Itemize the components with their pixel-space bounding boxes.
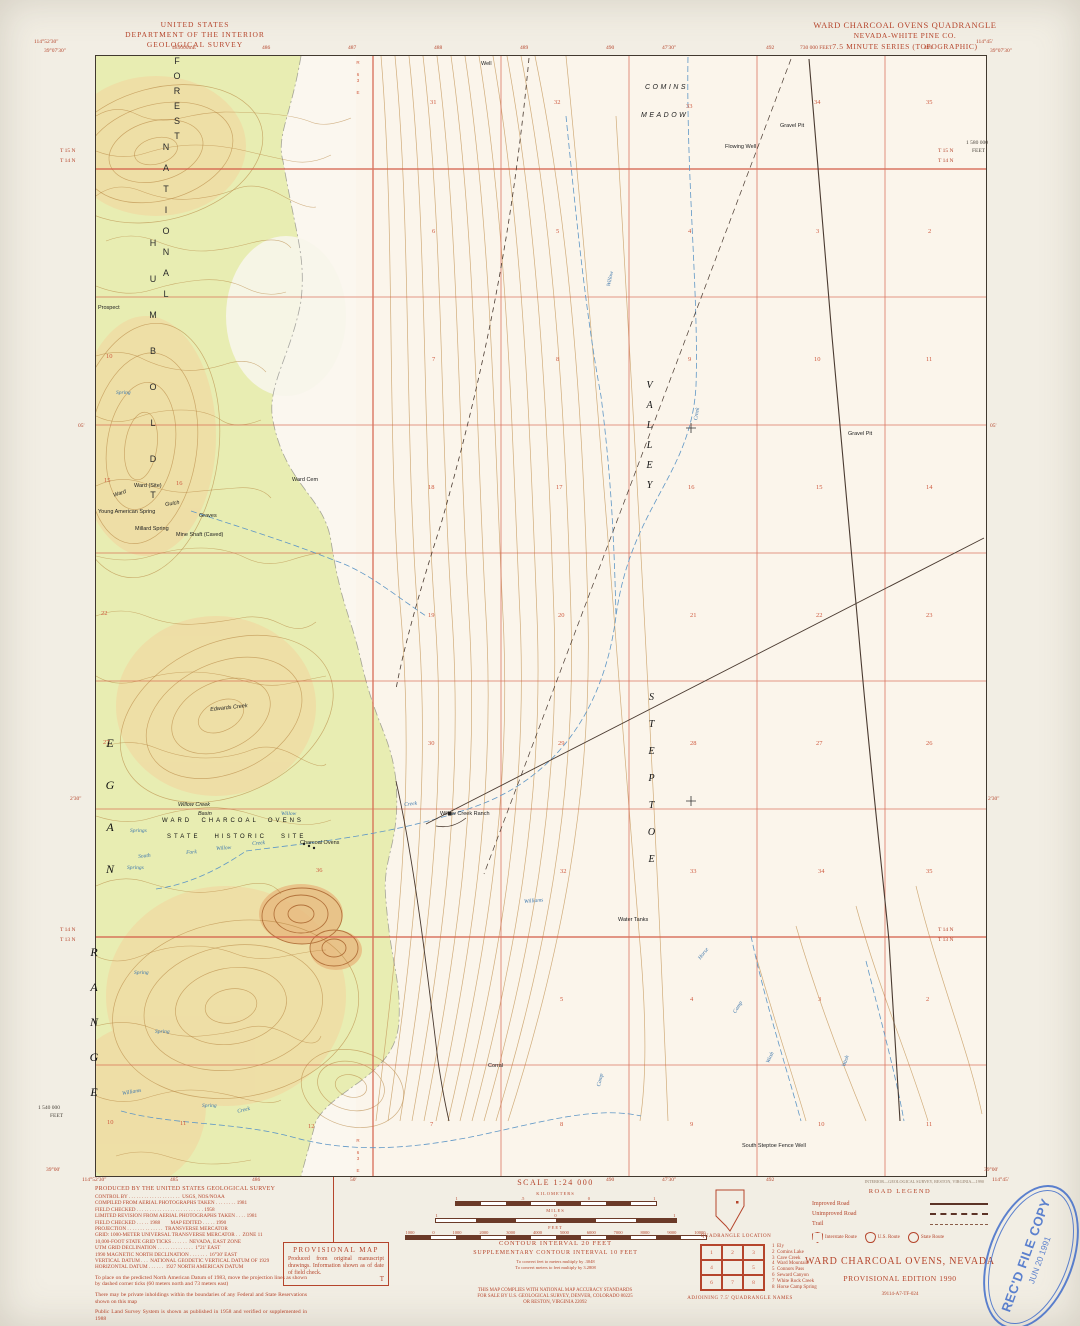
credit-paragraph: There may be private inholdings within t… [95, 1292, 307, 1305]
route-label: Interstate Route [825, 1235, 857, 1240]
contour-info: CONTOUR INTERVAL 20 FEET SUPPLEMENTARY C… [398, 1240, 713, 1270]
edge-label: 114°45' [992, 1178, 1009, 1184]
provisional-body: Produced from original manuscript drawin… [288, 1256, 384, 1276]
route-label: U.S. Route [878, 1235, 900, 1240]
scale-row-miles: MILES 101 [398, 1208, 713, 1223]
edge-label: T 14 N [60, 159, 75, 165]
edge-label: 2'30" [988, 797, 1000, 803]
adjoining-grid-cell: 7 [722, 1275, 743, 1290]
header-line: GEOLOGICAL SURVEY [80, 40, 310, 50]
adjoining-grid: 12345678 [700, 1244, 765, 1291]
road-legend-label: Trail [812, 1221, 823, 1227]
route-shields: Interstate Route U.S. Route State Route [812, 1232, 988, 1243]
provisional-corner-mark: T [380, 1275, 384, 1283]
header-line: NEVADA-WHITE PINE CO. [740, 31, 1070, 41]
scale-bar [435, 1218, 677, 1223]
state-outline [714, 1188, 748, 1239]
road-legend-row: Improved Road [812, 1201, 988, 1207]
scale-tick: 7000 [614, 1230, 623, 1235]
road-legend-label: Unimproved Road [812, 1211, 857, 1217]
edge-label: 486 [252, 1178, 260, 1184]
edge-label: 05' [78, 424, 85, 430]
scale-unit: KILOMETERS [398, 1191, 713, 1196]
scale-tick: 2000 [479, 1230, 488, 1235]
route-label: State Route [921, 1235, 944, 1240]
edge-label: 487 [348, 46, 356, 52]
road-legend-title: ROAD LEGEND [812, 1188, 988, 1195]
topo-map-sheet: UNITED STATES DEPARTMENT OF THE INTERIOR… [0, 0, 1080, 1326]
adjoining-grid-cell [722, 1260, 743, 1275]
us-route: U.S. Route [865, 1232, 900, 1243]
quadrangle-location-caption: QUADRANGLE LOCATION [676, 1234, 796, 1239]
usgs-header: UNITED STATES DEPARTMENT OF THE INTERIOR… [80, 20, 310, 50]
improved-road-symbol [930, 1203, 988, 1205]
state-route: State Route [908, 1232, 944, 1243]
edge-label: 39°07'30" [44, 49, 66, 55]
credit-paragraph: To place on the predicted North American… [95, 1275, 307, 1288]
header-line: DEPARTMENT OF THE INTERIOR [80, 30, 310, 40]
scale-tick: 1 [653, 1196, 655, 1201]
us-route-shield-icon [865, 1232, 876, 1243]
scale-bar [455, 1201, 657, 1206]
scale-tick: .5 [521, 1196, 524, 1201]
conversion-note: To convert meters to feet multiply by 3.… [398, 1265, 713, 1271]
edge-label: FEET [50, 1114, 63, 1120]
scale-tick: 0 [432, 1230, 434, 1235]
scale-row-kilometers: KILOMETERS 1.501 [398, 1191, 713, 1206]
road-legend: ROAD LEGEND Improved Road Unimproved Roa… [812, 1188, 988, 1243]
adjoining-grid-cell: 1 [701, 1245, 722, 1260]
quadrangle-header: WARD CHARCOAL OVENS QUADRANGLE NEVADA-WH… [740, 20, 1070, 52]
scale-block: SCALE 1:24 000 KILOMETERS 1.501 MILES 10… [398, 1178, 713, 1242]
header-line: UNITED STATES [80, 20, 310, 30]
header-line: 7.5 MINUTE SERIES (TOPOGRAPHIC) [740, 42, 1070, 52]
edge-label: T 14 N [60, 928, 75, 934]
provisional-title: PROVISIONAL MAP [288, 1246, 384, 1254]
scale-tick: 9000 [667, 1230, 676, 1235]
road-legend-label: Improved Road [812, 1201, 850, 1207]
credits-title: PRODUCED BY THE UNITED STATES GEOLOGICAL… [95, 1186, 307, 1192]
header-line: WARD CHARCOAL OVENS QUADRANGLE [740, 20, 1070, 31]
interstate-route: Interstate Route [812, 1232, 857, 1243]
edge-label: 05' [990, 424, 997, 430]
credit-line: HORIZONTAL DATUM . . . . . . 1927 NORTH … [95, 1264, 307, 1270]
scale-tick: 1000 [406, 1230, 415, 1235]
edge-label: 490 [606, 46, 614, 52]
scale-row-feet: FEET 10000100020003000400050006000700080… [398, 1225, 713, 1240]
edge-label: 50' [350, 1178, 357, 1184]
edge-label: 488 [434, 46, 442, 52]
scale-tick: 8000 [640, 1230, 649, 1235]
production-credits: PRODUCED BY THE UNITED STATES GEOLOGICAL… [95, 1186, 307, 1322]
credit-paragraph: Public Land Survey System is shown as pu… [95, 1309, 307, 1322]
edge-label: T 13 N [60, 938, 75, 944]
edge-label: 2'30" [70, 797, 82, 803]
adjoining-grid-cell: 6 [701, 1275, 722, 1290]
scale-tick: 1 [436, 1213, 438, 1218]
provisional-leader-line [333, 1177, 334, 1242]
adjoining-grid-cell: 4 [701, 1260, 722, 1275]
scale-tick: 1000 [452, 1230, 461, 1235]
interstate-shield-icon [812, 1232, 823, 1243]
road-legend-row: Trail [812, 1221, 988, 1227]
scale-tick: 6000 [587, 1230, 596, 1235]
adjoining-grid-cell: 2 [722, 1245, 743, 1260]
provisional-map-box: PROVISIONAL MAP Produced from original m… [283, 1242, 389, 1286]
contour-interval: CONTOUR INTERVAL 20 FEET [398, 1240, 713, 1247]
edge-label: 489 [520, 46, 528, 52]
scale-tick: 5000 [560, 1230, 569, 1235]
map-area [95, 55, 987, 1177]
printing-imprint: INTERIOR—GEOLOGICAL SURVEY, RESTON, VIRG… [620, 1179, 984, 1184]
edge-label: 114°52'30" [34, 40, 58, 46]
unimproved-road-symbol [930, 1213, 988, 1215]
trail-symbol [930, 1224, 988, 1225]
scale-tick: 4000 [533, 1230, 542, 1235]
road-legend-row: Unimproved Road [812, 1211, 988, 1217]
scale-tick: 1 [456, 1196, 458, 1201]
edge-label: 485 [170, 1178, 178, 1184]
scale-tick: 0 [588, 1196, 590, 1201]
scale-tick: 3000 [506, 1230, 515, 1235]
edge-label: 47'30" [662, 46, 676, 52]
terrain-graphic [96, 56, 986, 1176]
state-route-shield-icon [908, 1232, 919, 1243]
scale-tick: 0 [554, 1213, 556, 1218]
edge-label: 114°52'30" [82, 1178, 106, 1184]
edge-label: 1 540 000 [38, 1106, 60, 1112]
edge-label: 39°00' [46, 1168, 60, 1174]
scale-tick: 1 [673, 1213, 675, 1218]
edge-label: T 15 N [60, 149, 75, 155]
supplementary-contour-interval: SUPPLEMENTARY CONTOUR INTERVAL 10 FEET [398, 1250, 713, 1256]
